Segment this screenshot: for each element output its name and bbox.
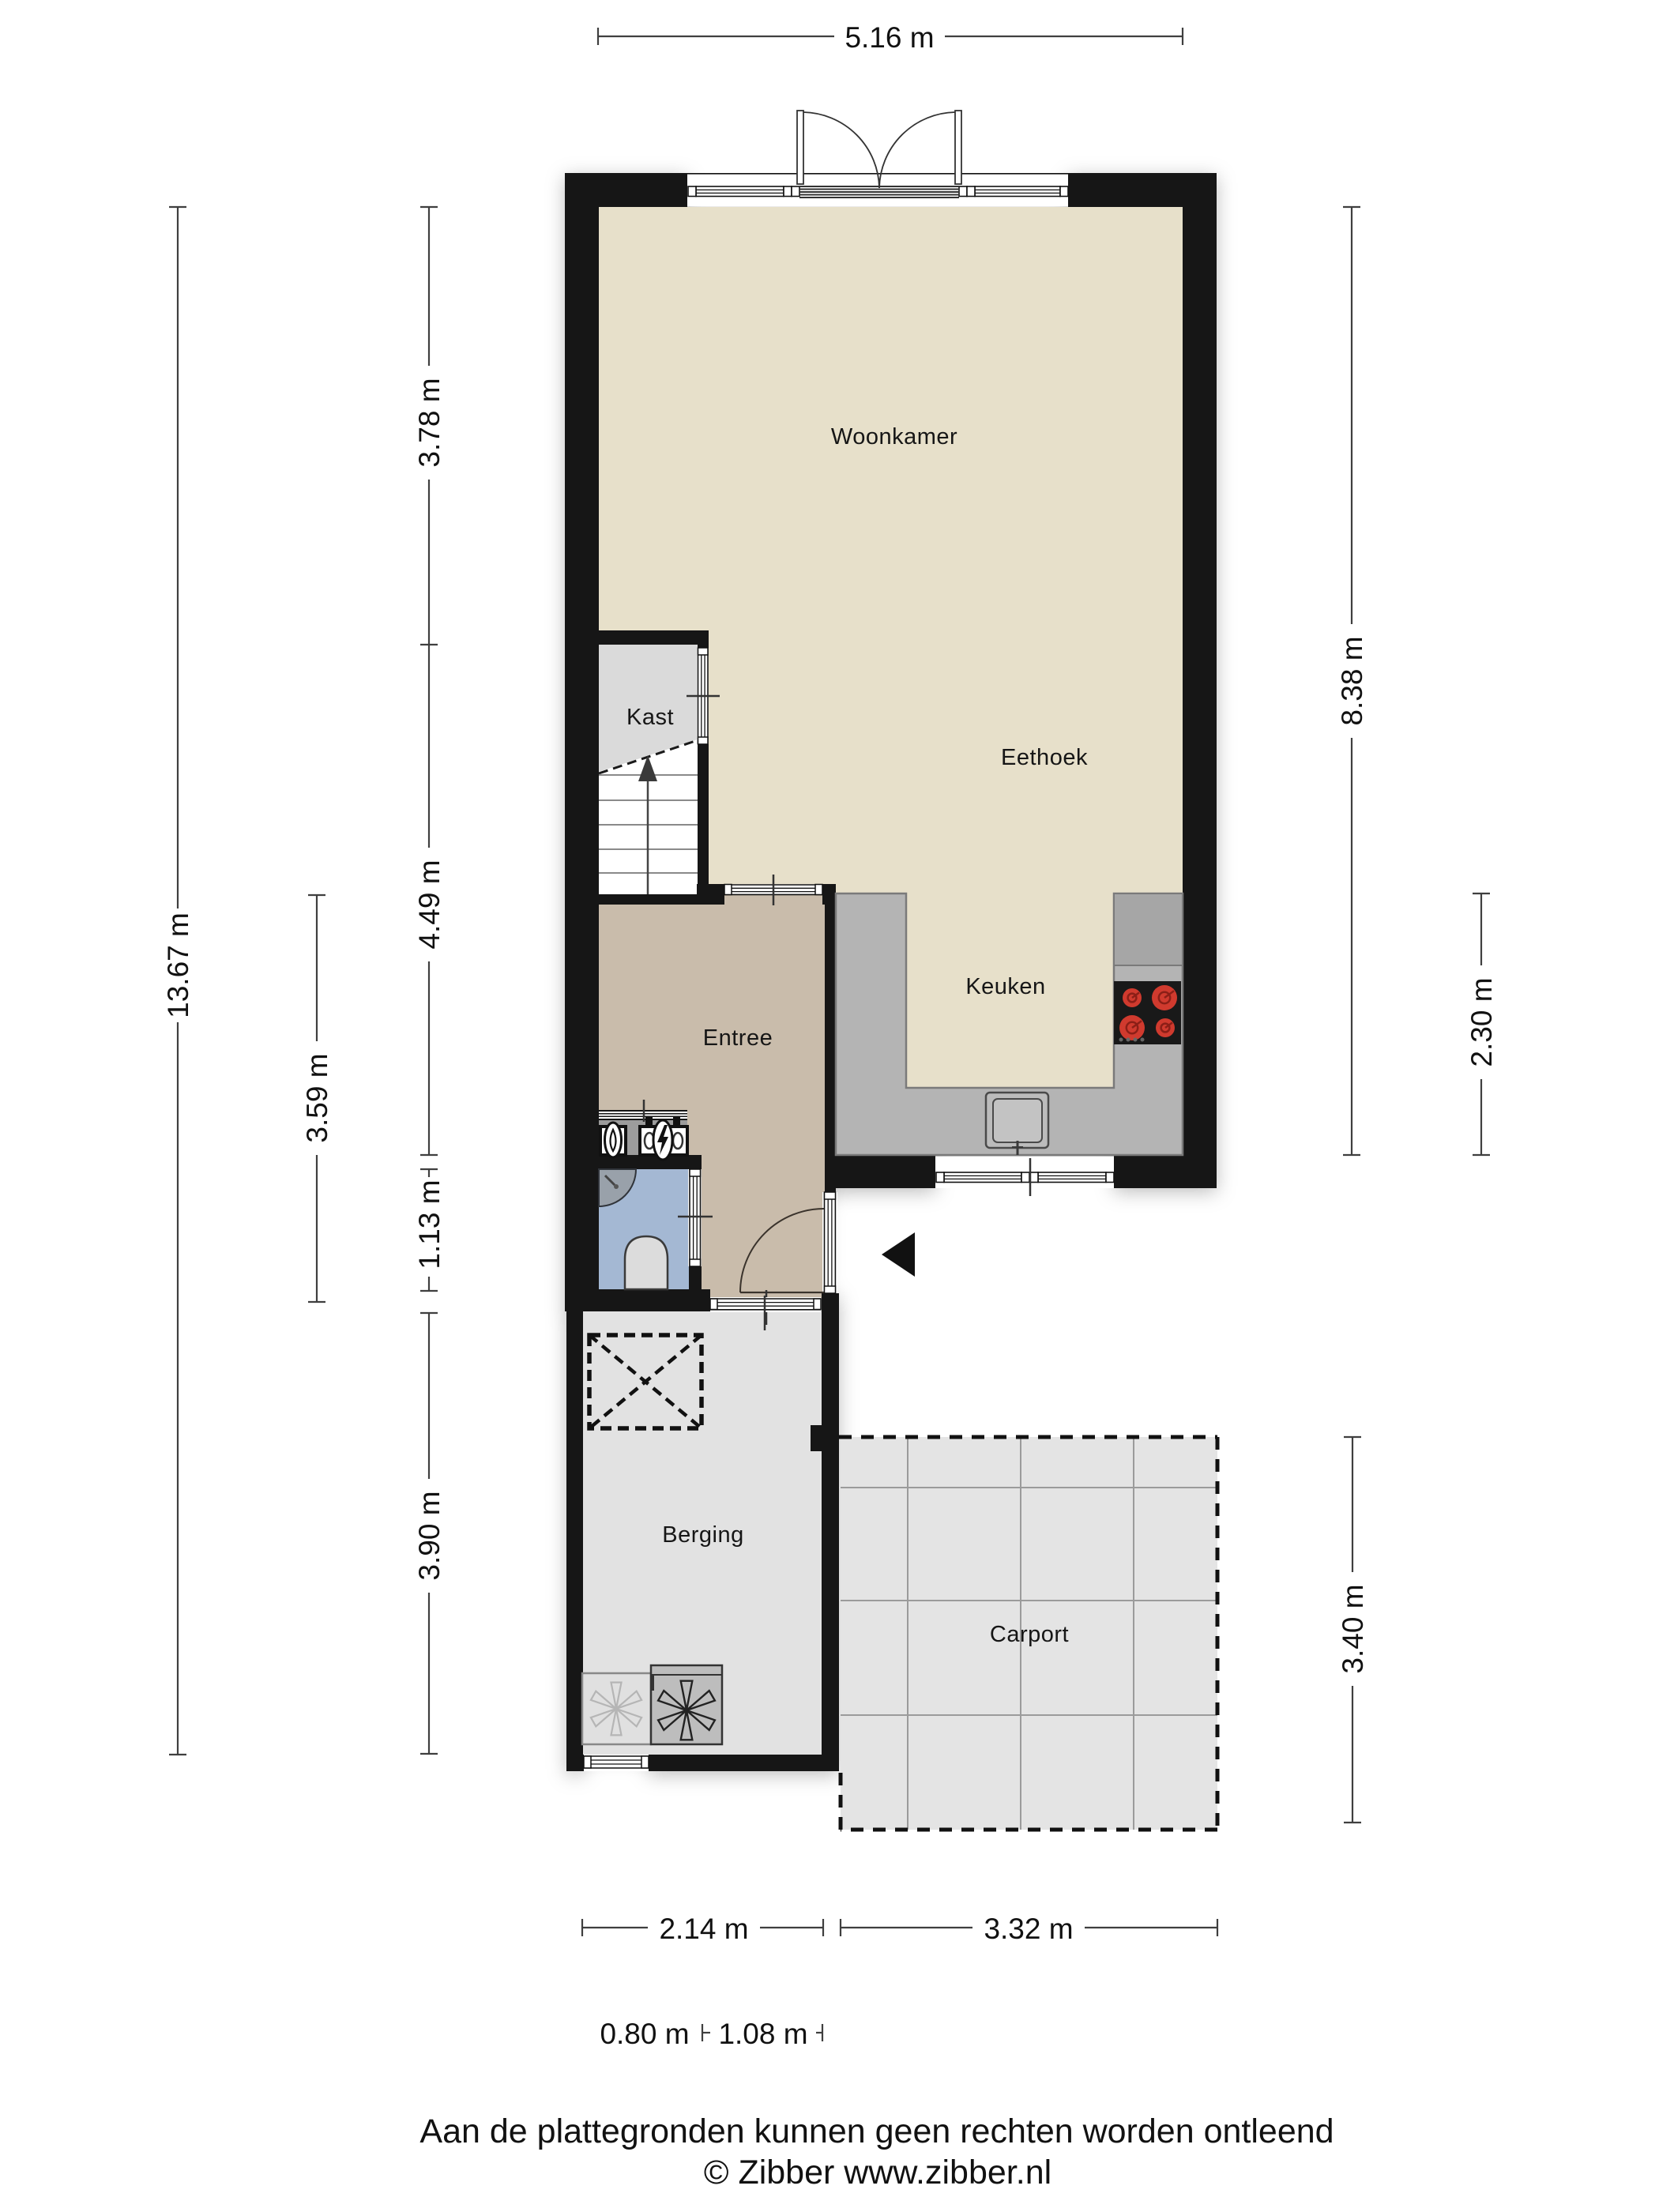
svg-text:4.49 m: 4.49 m [413, 860, 446, 949]
svg-text:Entree: Entree [703, 1025, 773, 1051]
svg-text:© Zibber www.zibber.nl: © Zibber www.zibber.nl [704, 2154, 1051, 2191]
svg-text:Kast: Kast [626, 705, 674, 730]
svg-text:0.80 m: 0.80 m [600, 2018, 689, 2050]
svg-text:3.40 m: 3.40 m [1337, 1584, 1369, 1673]
svg-text:13.67 m: 13.67 m [162, 912, 194, 1018]
svg-text:1.13 m: 1.13 m [413, 1179, 446, 1269]
svg-text:3.59 m: 3.59 m [301, 1053, 333, 1142]
svg-text:3.90 m: 3.90 m [413, 1491, 446, 1580]
svg-text:3.78 m: 3.78 m [413, 378, 446, 467]
svg-text:3.32 m: 3.32 m [984, 1913, 1073, 1945]
svg-text:Berging: Berging [662, 1522, 743, 1548]
svg-text:Carport: Carport [990, 1622, 1069, 1647]
svg-text:2.30 m: 2.30 m [1465, 977, 1498, 1066]
svg-text:Aan de plattegronden kunnen ge: Aan de plattegronden kunnen geen rechten… [419, 2112, 1334, 2150]
svg-text:Woonkamer: Woonkamer [831, 424, 957, 450]
svg-text:8.38 m: 8.38 m [1336, 636, 1368, 725]
svg-text:5.16 m: 5.16 m [845, 21, 934, 54]
svg-text:2.14 m: 2.14 m [659, 1913, 748, 1945]
svg-text:1.08 m: 1.08 m [718, 2018, 807, 2050]
svg-text:Eethoek: Eethoek [1001, 745, 1088, 770]
svg-text:Keuken: Keuken [965, 974, 1045, 999]
